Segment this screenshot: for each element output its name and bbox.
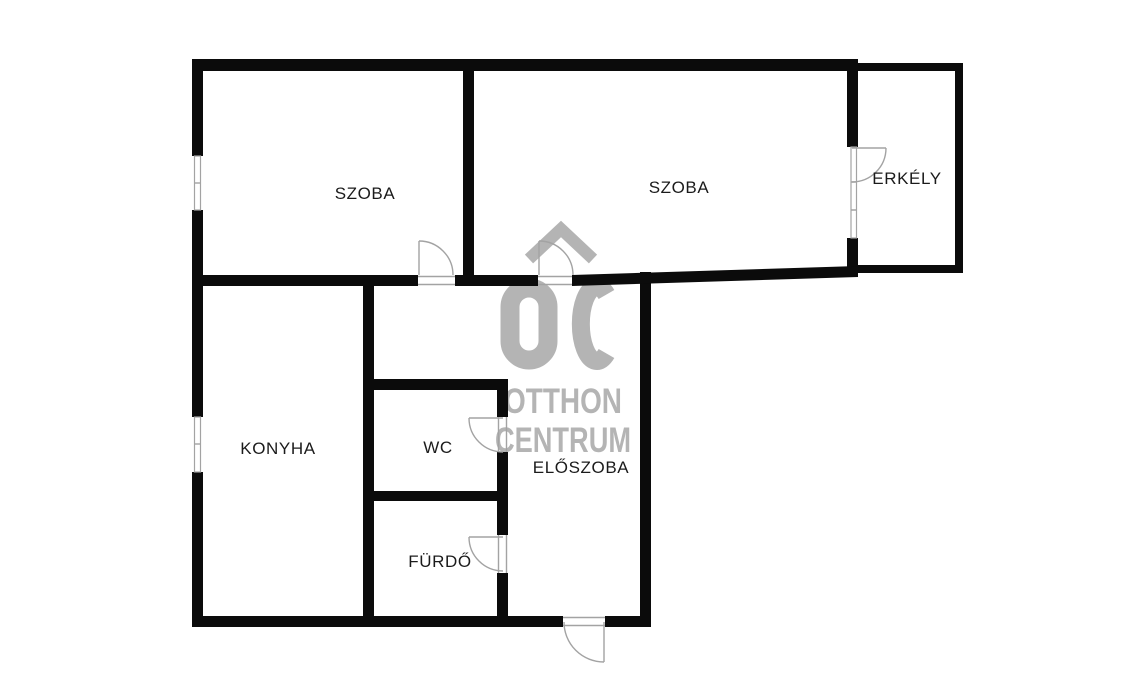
- wall-szoba-right-upper: [847, 59, 858, 147]
- room-label-eloszoba: ELŐSZOBA: [533, 458, 629, 478]
- wall-balcony-top: [858, 63, 963, 71]
- wall-konyha-divider: [363, 275, 374, 627]
- room-label-konyha: KONYHA: [240, 439, 315, 459]
- window-balcony-glazing: [851, 147, 857, 238]
- wall-balcony-bottom: [852, 265, 963, 273]
- watermark-logo: OTTHON CENTRUM: [495, 229, 631, 460]
- wall-wc-furdo-divider: [363, 491, 508, 501]
- room-label-szoba-right: SZOBA: [649, 178, 710, 198]
- wall-szoba1-bottom-a: [192, 275, 418, 286]
- watermark-line2: CENTRUM: [495, 421, 631, 460]
- room-label-furdo: FÜRDŐ: [408, 552, 471, 572]
- wall-left-middle: [192, 210, 203, 417]
- wall-wc-top: [363, 379, 508, 390]
- door-szoba-left: [418, 241, 455, 285]
- wall-left-lower: [192, 472, 203, 627]
- floor-plan: OTTHON CENTRUM: [0, 0, 1123, 679]
- wall-wc-right-a: [497, 379, 508, 417]
- wall-szoba1-bottom-b: [455, 275, 538, 286]
- floorplan-canvas: OTTHON CENTRUM: [0, 0, 1123, 679]
- wall-szoba2-bottom-slanted: [572, 266, 858, 286]
- wall-left-upper: [192, 59, 203, 156]
- doors: [418, 148, 886, 662]
- door-furdo: [469, 535, 507, 573]
- window-konyha: [195, 417, 201, 472]
- wall-wc-right-c: [497, 573, 508, 627]
- wall-szoba-divider: [463, 59, 474, 286]
- wall-balcony-right: [955, 63, 963, 273]
- room-label-szoba-left: SZOBA: [335, 184, 396, 204]
- wall-top: [192, 59, 858, 71]
- window-szoba-left: [195, 156, 201, 210]
- room-label-erkely: ERKÉLY: [872, 169, 941, 189]
- wall-wc-right-b: [497, 452, 508, 535]
- door-entrance: [563, 618, 605, 663]
- watermark-line1: OTTHON: [504, 382, 622, 421]
- oc-logo-mark: [510, 287, 607, 361]
- wall-eloszoba-right: [640, 272, 651, 627]
- room-label-wc: WC: [423, 438, 453, 458]
